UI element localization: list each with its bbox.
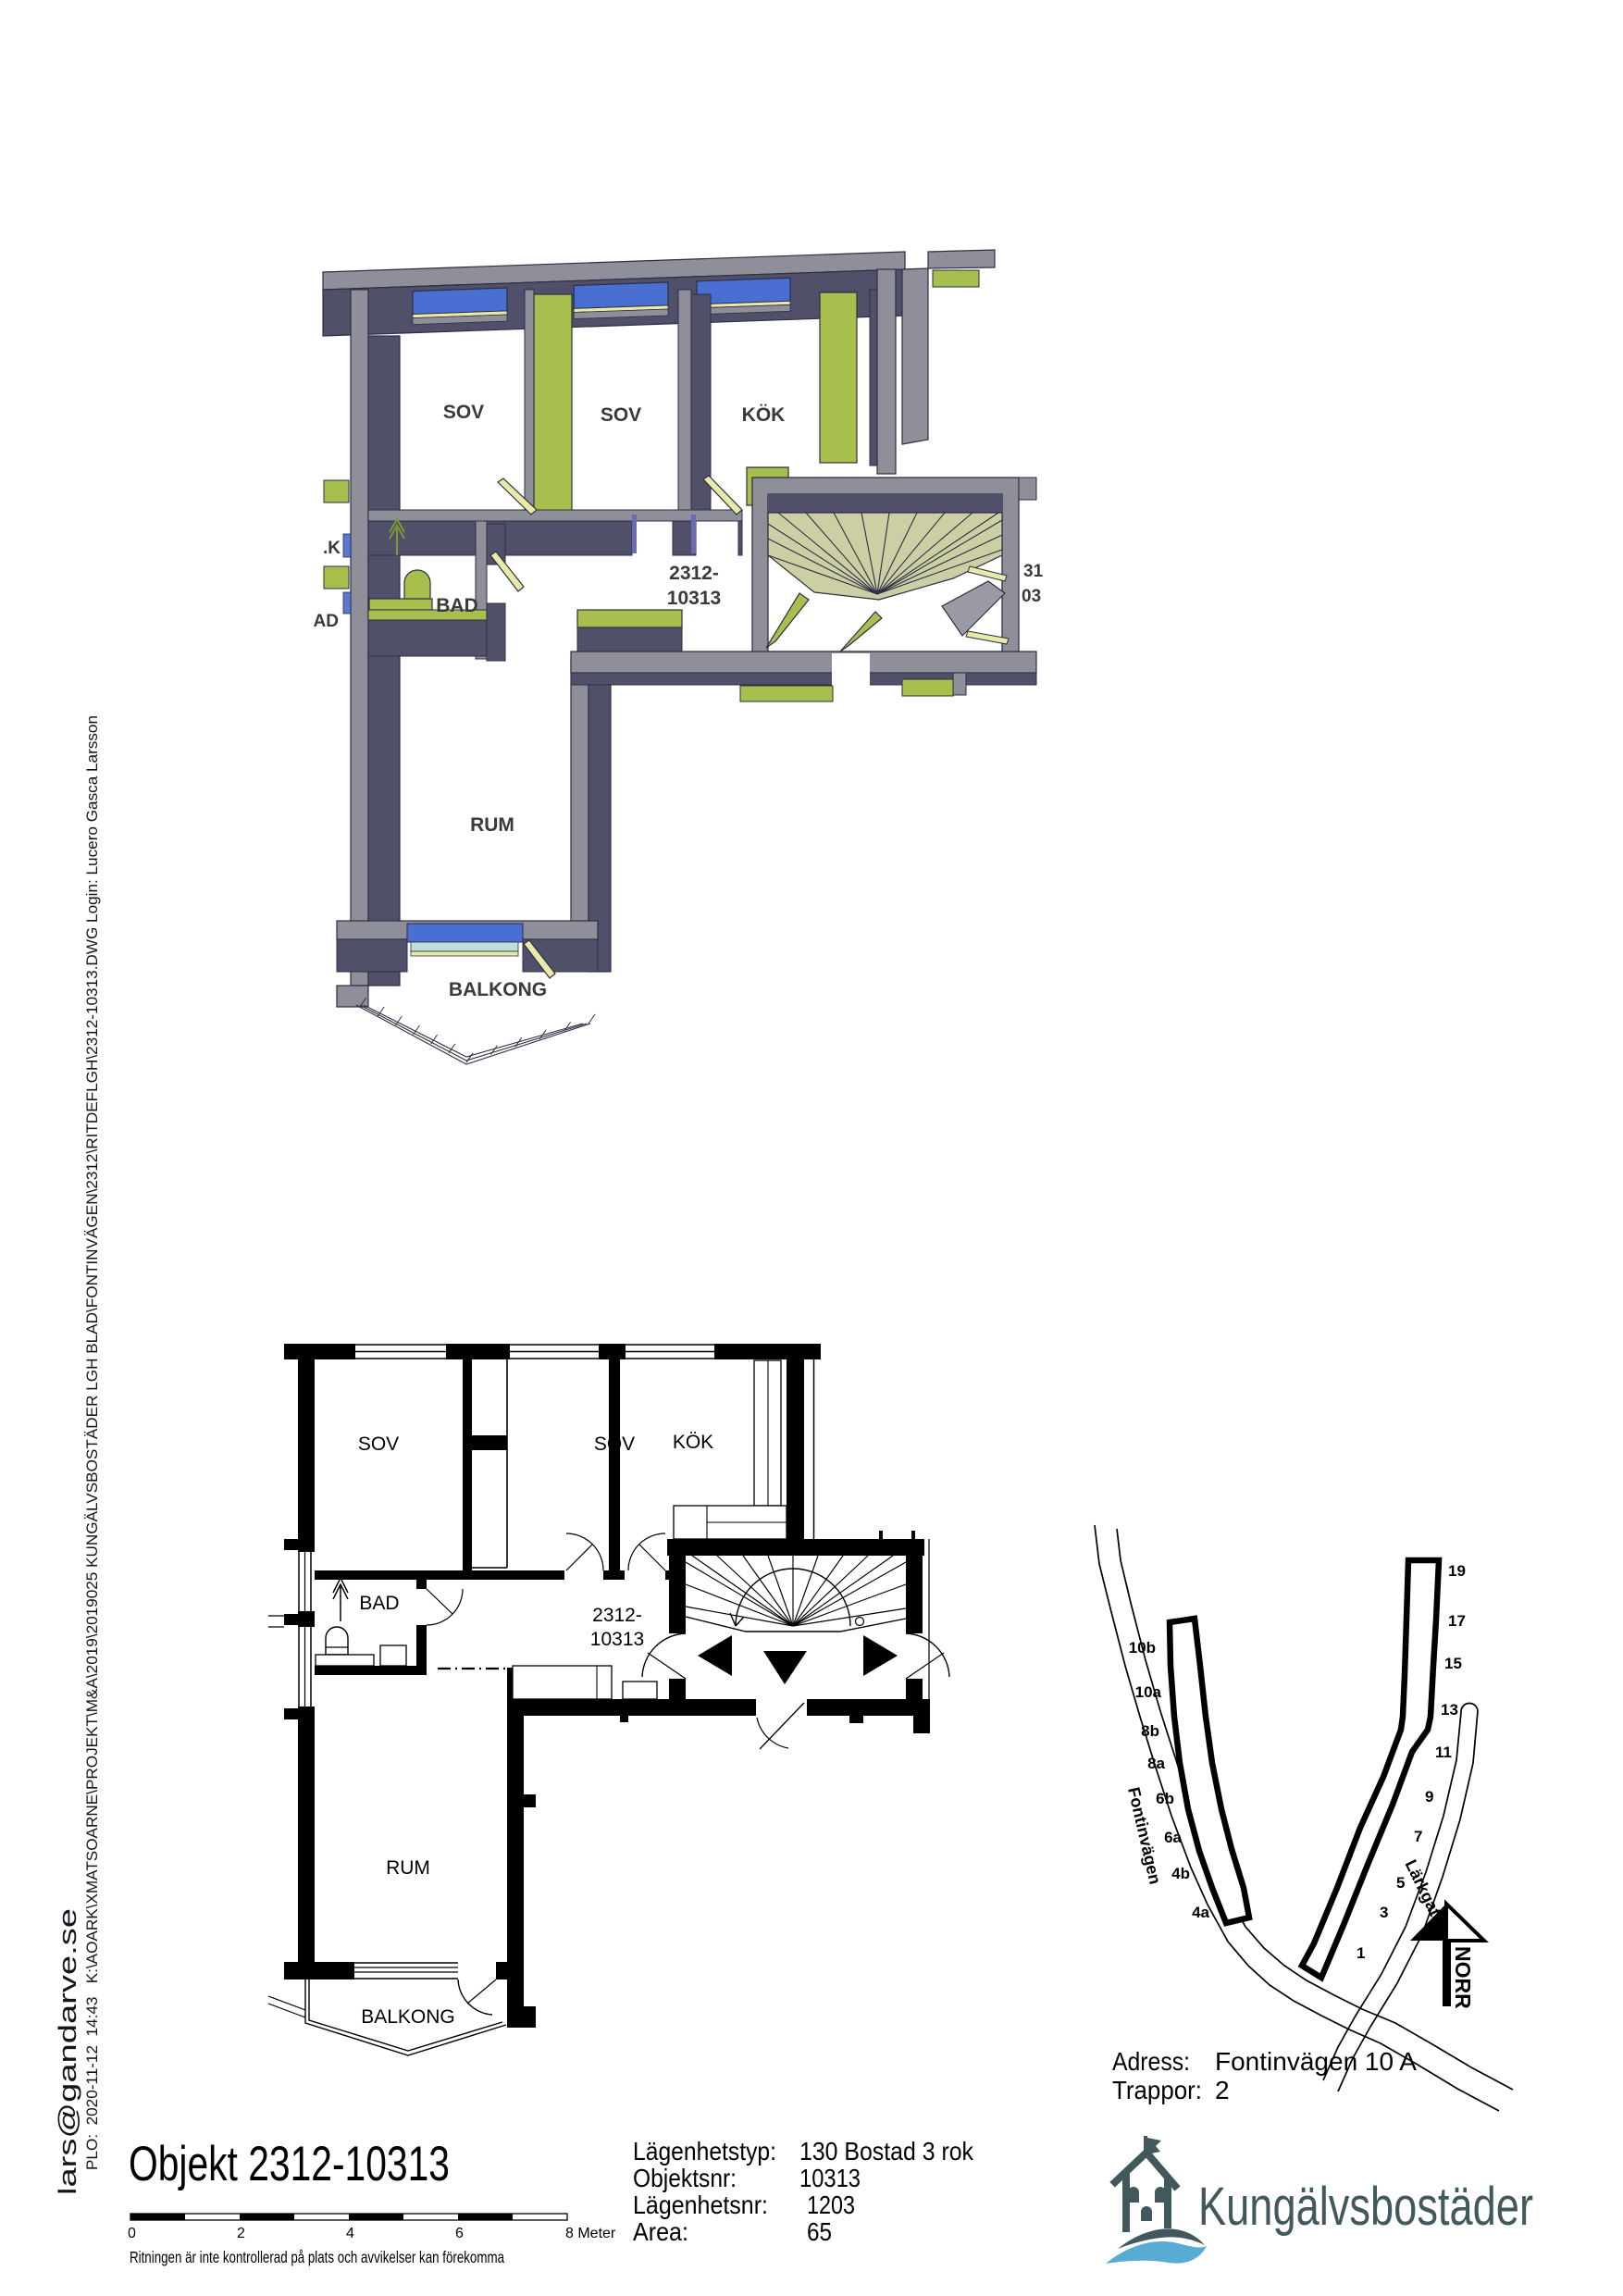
svg-text:03: 03 (1022, 587, 1041, 606)
svg-text:AD: AD (314, 612, 339, 631)
svg-text:8b: 8b (1141, 1722, 1159, 1740)
svg-text:Trappor:: Trappor: (1112, 2076, 1202, 2104)
svg-text:1203: 1203 (807, 2191, 855, 2219)
svg-text:31: 31 (1023, 562, 1044, 581)
svg-text:Lägenhetsnr:: Lägenhetsnr: (633, 2191, 768, 2219)
svg-text:11: 11 (1435, 1744, 1452, 1761)
svg-text:10313: 10313 (667, 588, 721, 609)
svg-text:Area:: Area: (633, 2217, 688, 2246)
svg-text:4a: 4a (1192, 1904, 1209, 1921)
svg-text:SOV: SOV (594, 1433, 635, 1455)
svg-text:NORR: NORR (1451, 1946, 1475, 2009)
svg-text:6b: 6b (1156, 1790, 1174, 1807)
svg-text:6a: 6a (1164, 1829, 1182, 1846)
svg-text:RUM: RUM (386, 1857, 430, 1879)
svg-text:17: 17 (1448, 1612, 1466, 1630)
svg-text:SOV: SOV (443, 402, 484, 423)
svg-text:2: 2 (237, 2226, 245, 2241)
svg-text:KÖK: KÖK (742, 404, 786, 426)
svg-text:10b: 10b (1129, 1639, 1156, 1657)
svg-text:65: 65 (807, 2217, 832, 2246)
svg-text:9: 9 (1425, 1788, 1433, 1806)
svg-text:KÖK: KÖK (673, 1432, 713, 1453)
svg-text:RUM: RUM (470, 814, 514, 836)
svg-text:BALKONG: BALKONG (449, 979, 547, 1000)
svg-text:SOV: SOV (601, 404, 641, 426)
svg-text:Ritningen är inte kontrollerad: Ritningen är inte kontrollerad på plats … (130, 2248, 504, 2266)
svg-text:BALKONG: BALKONG (361, 2006, 455, 2028)
svg-text:3: 3 (1380, 1904, 1388, 1921)
svg-text:Kungälvsbostäder: Kungälvsbostäder (1198, 2177, 1533, 2237)
svg-text:Lägenhetstyp:: Lägenhetstyp: (633, 2137, 776, 2166)
svg-text:5: 5 (1396, 1874, 1405, 1892)
svg-text:.K: .K (323, 539, 341, 558)
svg-text:SOV: SOV (358, 1433, 399, 1455)
svg-text:Adress:: Adress: (1112, 2047, 1190, 2076)
svg-text:130 Bostad 3 rok: 130 Bostad 3 rok (799, 2137, 973, 2166)
svg-text:Objektsnr:: Objektsnr: (633, 2164, 737, 2192)
svg-text:19: 19 (1448, 1562, 1466, 1580)
svg-text:10313: 10313 (590, 1629, 644, 1650)
svg-text:4b: 4b (1171, 1865, 1190, 1882)
svg-text:Objekt 2312-10313: Objekt 2312-10313 (129, 2137, 450, 2191)
svg-text:PLO: 2020-11-12 14:43 K:\A: PLO: 2020-11-12 14:43 K:\AOARK\XMATSOARN… (84, 715, 101, 2170)
svg-text:15: 15 (1444, 1655, 1462, 1672)
svg-text:6: 6 (455, 2226, 464, 2241)
svg-text:13: 13 (1441, 1701, 1458, 1719)
svg-text:2: 2 (1215, 2076, 1230, 2104)
svg-text:10a: 10a (1135, 1683, 1162, 1701)
svg-text:10313: 10313 (799, 2164, 861, 2192)
svg-text:8a: 8a (1147, 1755, 1165, 1772)
svg-text:BAD: BAD (436, 595, 478, 616)
svg-text:Fontinvägen 10 A: Fontinvägen 10 A (1215, 2047, 1417, 2076)
svg-text:BAD: BAD (359, 1593, 399, 1614)
svg-text:7: 7 (1414, 1828, 1422, 1845)
svg-text:2312-: 2312- (669, 563, 719, 584)
svg-text:8 Meter: 8 Meter (565, 2226, 616, 2241)
svg-text:1: 1 (1357, 1944, 1365, 1962)
svg-text:lars@gandarve.se: lars@gandarve.se (54, 1908, 81, 2195)
svg-text:2312-: 2312- (592, 1605, 642, 1626)
svg-text:4: 4 (346, 2226, 354, 2241)
svg-text:0: 0 (128, 2226, 136, 2241)
